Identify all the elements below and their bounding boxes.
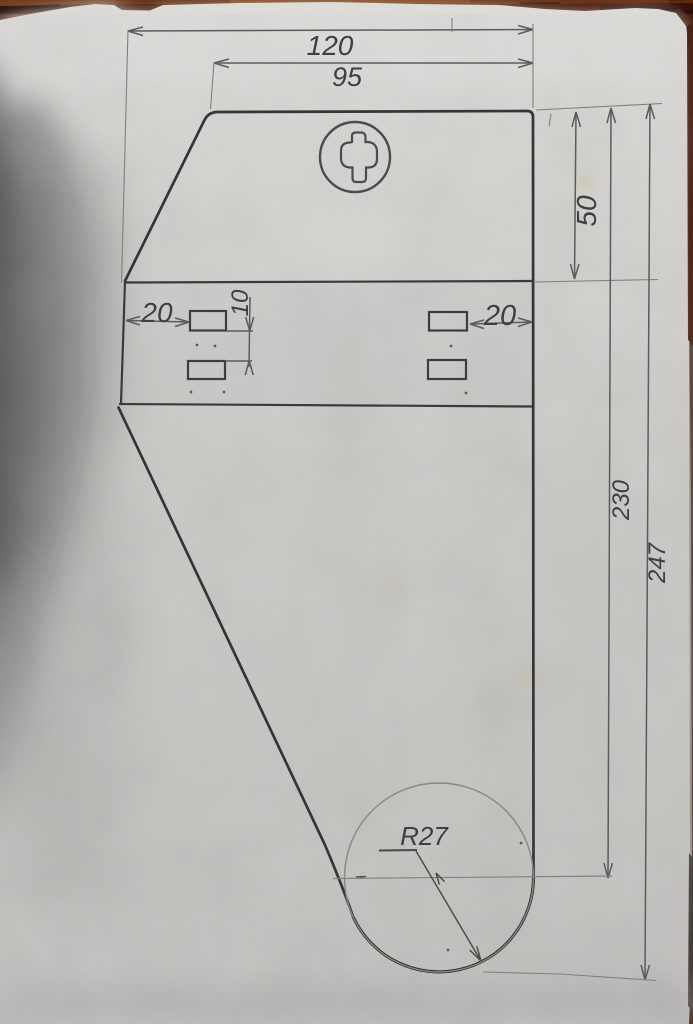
svg-text:20: 20 (140, 297, 173, 328)
svg-text:10: 10 (227, 289, 254, 316)
svg-text:R27: R27 (400, 821, 449, 851)
svg-text:120: 120 (307, 30, 354, 61)
svg-text:230: 230 (608, 479, 635, 521)
svg-text:50: 50 (571, 195, 602, 227)
svg-text:20: 20 (483, 300, 516, 332)
svg-text:95: 95 (332, 62, 363, 92)
svg-text:247: 247 (644, 541, 671, 584)
